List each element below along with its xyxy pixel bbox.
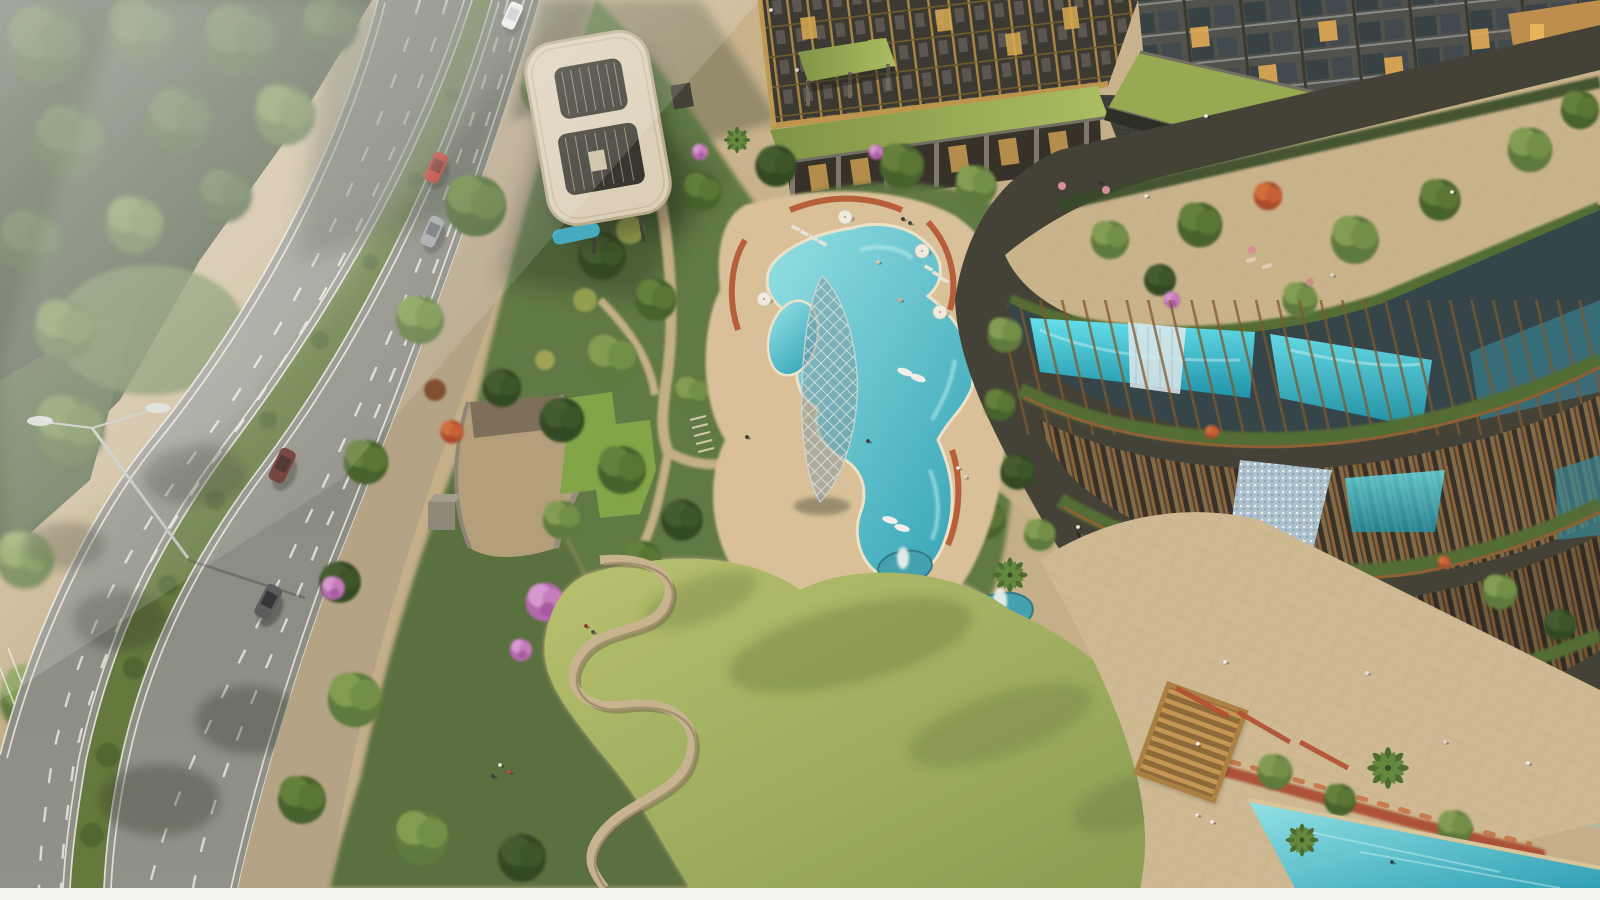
screenshot-viewport: Aerial rendering of a residential resort…: [0, 0, 1600, 900]
bottom-border-strip: [0, 888, 1600, 900]
palm-tree: [1367, 747, 1409, 789]
rendering-scene: Aerial rendering of a residential resort…: [0, 0, 1600, 888]
aquarium-wall-3: [1345, 470, 1445, 532]
concrete-cube: [428, 502, 455, 530]
palm-tree: [1286, 824, 1319, 857]
canopy-planter: [670, 82, 694, 109]
